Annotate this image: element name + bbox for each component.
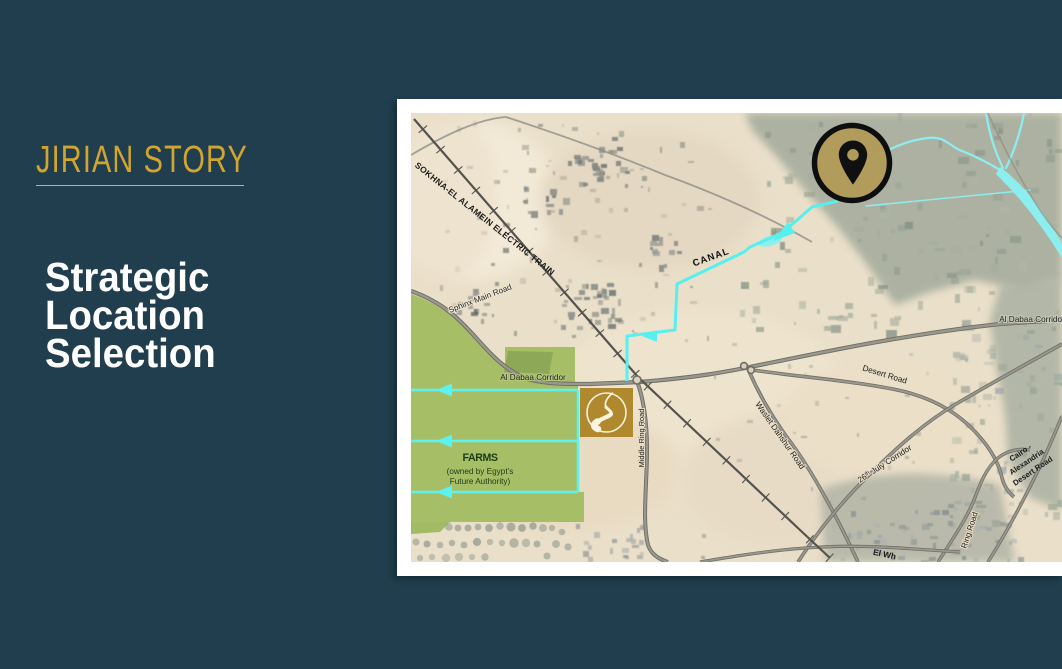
svg-text:Al Dabaa Corridor: Al Dabaa Corridor (500, 373, 566, 382)
svg-text:Al Dabaa Corridor: Al Dabaa Corridor (999, 315, 1062, 324)
svg-text:FARMS: FARMS (462, 452, 497, 464)
svg-text:Future Authority): Future Authority) (450, 477, 511, 486)
svg-text:(owned by Egypt’s: (owned by Egypt’s (447, 467, 514, 476)
svg-text:Middle Ring Road: Middle Ring Road (637, 409, 646, 468)
